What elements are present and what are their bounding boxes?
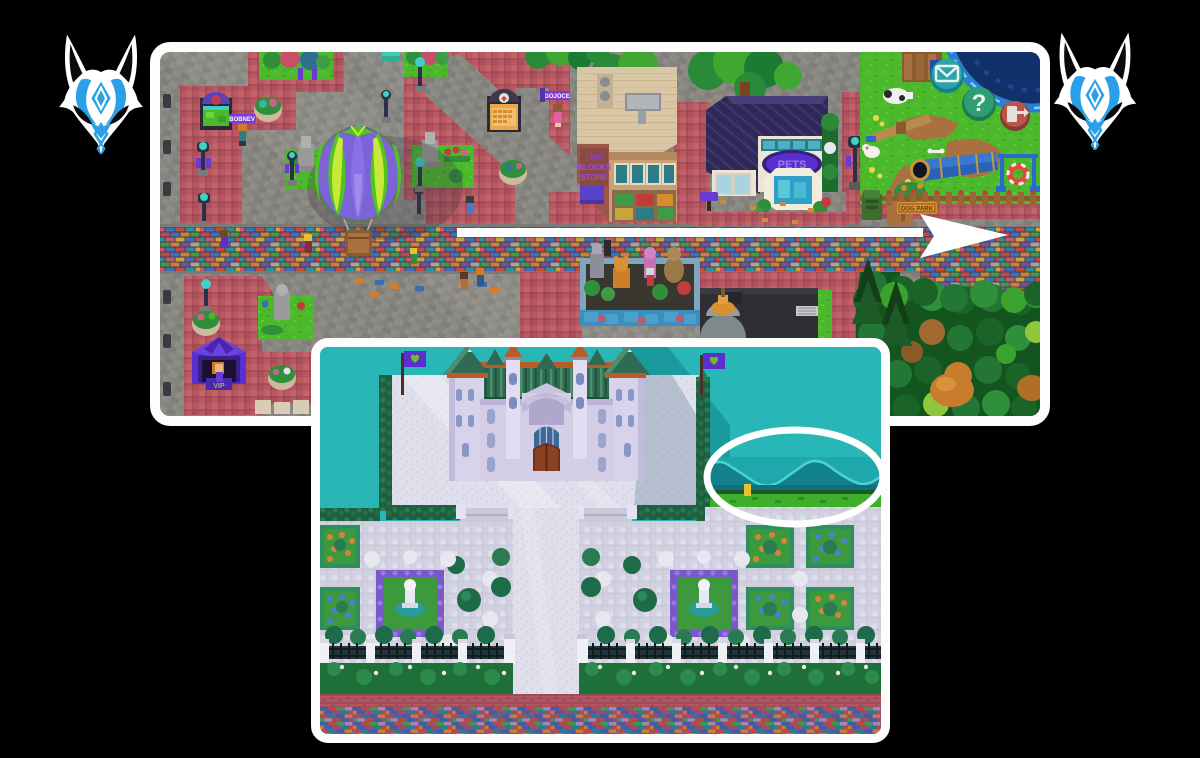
svg-text:GOJOCE: GOJOCE [544, 94, 570, 100]
svg-text:DOG PARK: DOG PARK [901, 207, 934, 213]
svg-text:BOBNEV: BOBNEV [229, 117, 255, 123]
svg-text:STORE: STORE [580, 173, 608, 182]
svg-text:?: ? [972, 90, 987, 117]
svg-text:THE: THE [585, 152, 603, 162]
svg-text:VIP: VIP [213, 383, 225, 390]
svg-text:BLOCKS: BLOCKS [577, 163, 611, 172]
